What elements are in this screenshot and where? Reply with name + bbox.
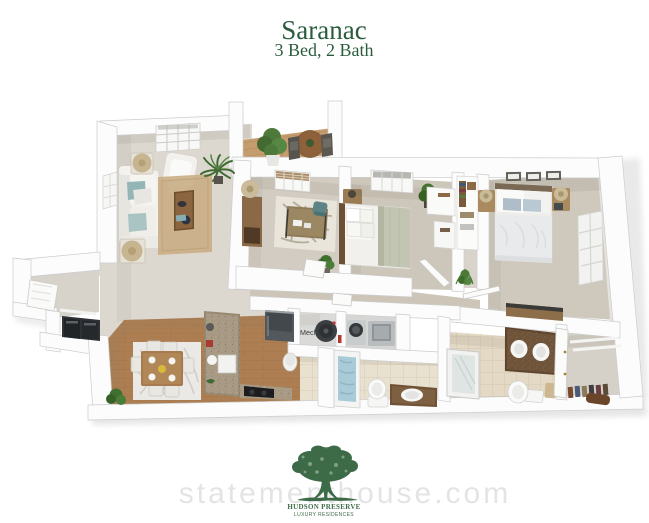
svg-text:3 Bed, 2 Bath: 3 Bed, 2 Bath	[275, 40, 374, 60]
svg-text:LUXURY RESIDENCES: LUXURY RESIDENCES	[294, 512, 354, 518]
svg-text:HUDSON PRESERVE: HUDSON PRESERVE	[287, 503, 360, 511]
svg-text:Mech.: Mech.	[300, 328, 320, 337]
